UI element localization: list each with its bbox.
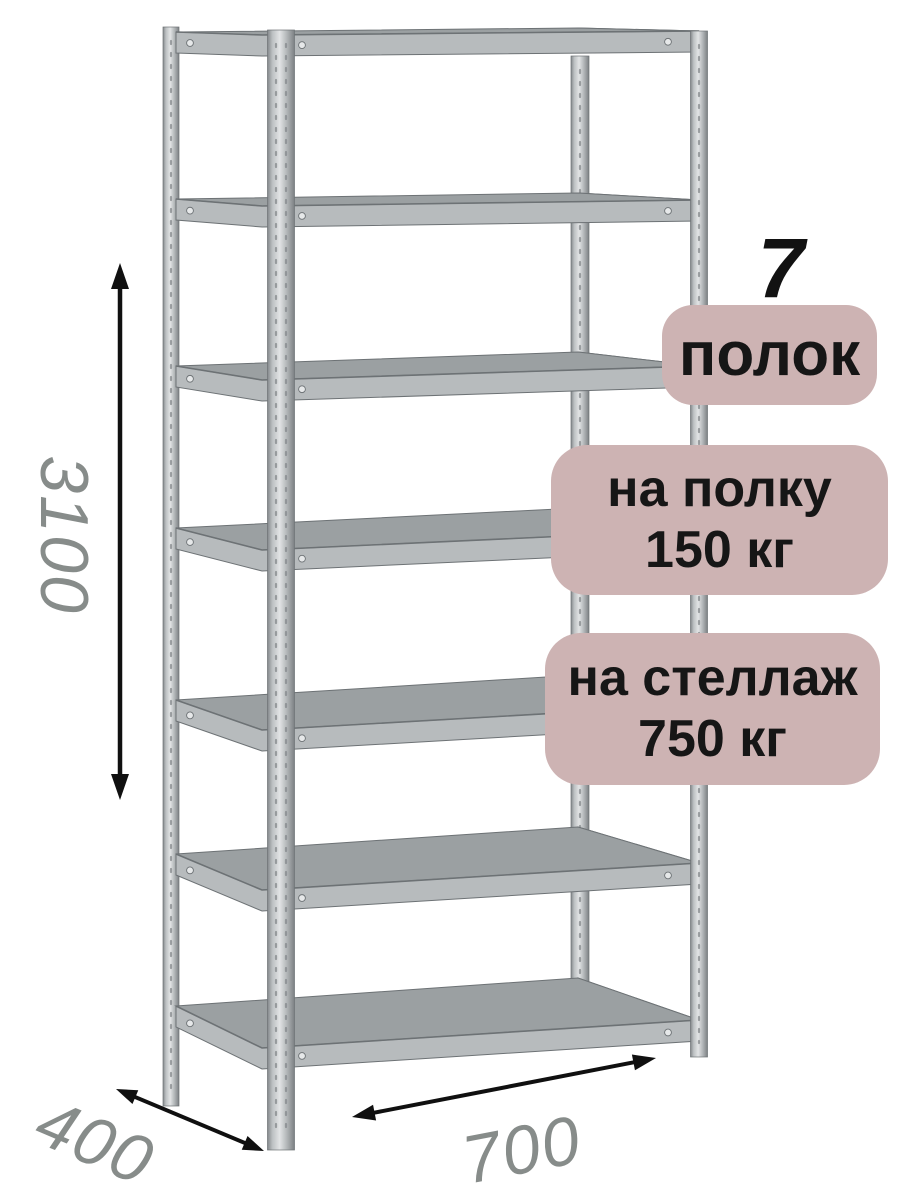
per-rack-load-badge: на стеллаж 750 кг bbox=[545, 633, 880, 785]
shelf-count-number: 7 bbox=[758, 226, 805, 310]
shelf-count-badge: полок bbox=[662, 305, 877, 405]
shelf-count-label: полок bbox=[679, 318, 860, 391]
per-shelf-load-line2: 150 кг bbox=[645, 520, 794, 581]
per-shelf-load-line1: на полку bbox=[607, 459, 832, 520]
per-rack-load-line1: на стеллаж bbox=[568, 648, 858, 709]
product-scene: 3100 400 700 7 полок на полку 150 кг на … bbox=[0, 0, 900, 1200]
shelving-rack-illustration bbox=[0, 0, 900, 1200]
rack-back-posts bbox=[163, 27, 589, 1106]
per-shelf-load-badge: на полку 150 кг bbox=[551, 445, 888, 595]
height-dimension-label: 3100 bbox=[30, 455, 98, 614]
per-rack-load-line2: 750 кг bbox=[638, 709, 787, 770]
